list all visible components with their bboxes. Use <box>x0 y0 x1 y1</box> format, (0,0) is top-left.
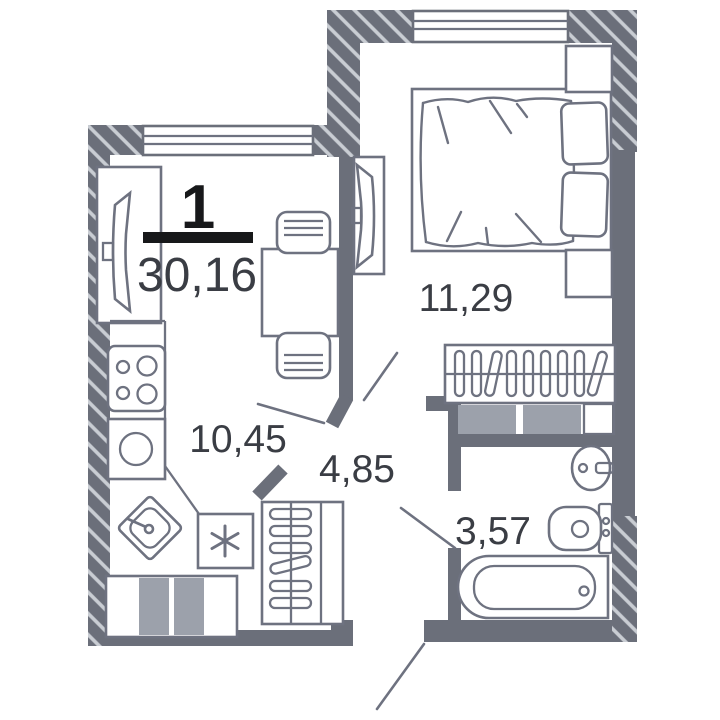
door-entrance <box>377 644 424 709</box>
chair <box>277 333 330 378</box>
bathroom-sink-icon <box>572 446 610 490</box>
wall-right-bottom <box>612 516 637 642</box>
window-living <box>143 126 313 155</box>
toilet-button <box>603 530 609 536</box>
wall-corner-foot <box>332 397 347 425</box>
floor-plan: 1 30,16 10,45 11,29 4,85 3,57 <box>0 0 720 720</box>
dining-table <box>262 249 338 336</box>
floor-plan-drawing: 1 30,16 10,45 11,29 4,85 3,57 <box>0 0 720 720</box>
area-hallway: 4,85 <box>319 448 395 491</box>
appliance-block <box>174 578 204 635</box>
area-living-kitchen: 10,45 <box>189 418 287 461</box>
chair <box>277 212 330 253</box>
undercounter-cabinet <box>106 576 237 637</box>
wardrobe-rail <box>445 345 615 403</box>
area-bedroom: 11,29 <box>419 277 514 320</box>
door-bathroom <box>401 508 455 548</box>
pillow <box>561 172 608 237</box>
hallway-furniture <box>262 502 343 624</box>
toilet-button <box>603 518 609 524</box>
wall-living-bedroom <box>339 152 353 400</box>
toilet-bowl <box>549 507 601 550</box>
washing-machine-icon <box>108 419 165 479</box>
wall-right-middle <box>612 150 635 518</box>
label-underline <box>143 232 253 243</box>
window-bedroom <box>413 11 568 42</box>
wardrobe-shelf <box>584 404 614 434</box>
pillow <box>561 102 608 165</box>
bathtub-icon <box>458 556 608 618</box>
toilet-icon <box>549 504 612 553</box>
wall-top-left-a <box>88 125 145 155</box>
faucet-handle <box>145 525 153 533</box>
appliance-block <box>139 578 169 635</box>
wall-bedroom-top-a <box>330 10 414 43</box>
door-bedroom <box>364 353 397 400</box>
wardrobe-drawer <box>523 405 581 434</box>
wall-bottom-bath <box>424 620 637 642</box>
wall-right-top <box>612 10 637 152</box>
nightstand <box>566 46 612 92</box>
nightstand <box>566 250 612 297</box>
room-count-label: 1 <box>181 173 215 242</box>
area-bathroom: 3,57 <box>455 510 531 553</box>
wall-hallway-stub <box>257 469 283 496</box>
stove-icon <box>108 346 165 411</box>
total-area-label: 30,16 <box>137 249 257 302</box>
bedroom-furniture <box>352 46 615 434</box>
wardrobe-drawer <box>458 405 516 434</box>
